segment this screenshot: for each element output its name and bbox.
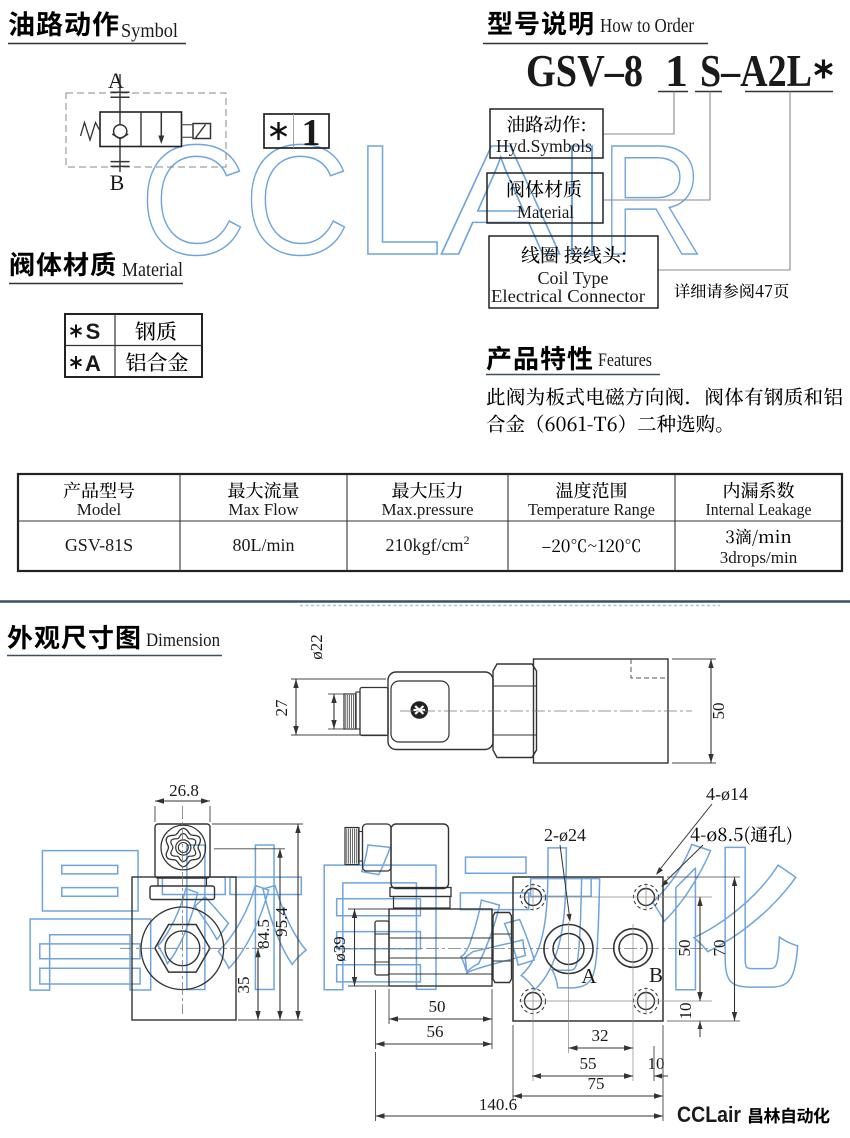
svg-text:95.4: 95.4 (272, 907, 291, 937)
svg-text:L: L (355, 113, 442, 288)
svg-text:Symbol: Symbol (121, 20, 178, 42)
svg-text:56: 56 (427, 1022, 444, 1041)
svg-text:10: 10 (648, 1054, 665, 1073)
svg-text:50: 50 (675, 940, 694, 957)
svg-text:55: 55 (580, 1054, 597, 1073)
svg-text:4-ø14: 4-ø14 (706, 784, 748, 804)
svg-text:Coil Type: Coil Type (538, 268, 609, 288)
svg-text:26.8: 26.8 (169, 781, 199, 800)
svg-text:Internal Leakage: Internal Leakage (706, 500, 812, 519)
svg-text:80L/min: 80L/min (233, 535, 295, 555)
svg-text:B: B (110, 170, 125, 195)
svg-text:How to Order: How to Order (600, 15, 694, 37)
svg-text:3drops/min: 3drops/min (720, 548, 798, 567)
svg-text:Max Flow: Max Flow (228, 500, 299, 519)
svg-text:GSV–8: GSV–8 (526, 45, 643, 96)
svg-text:Max.pressure: Max.pressure (381, 500, 473, 519)
svg-text:Model: Model (77, 500, 122, 519)
svg-text:A: A (85, 351, 101, 376)
svg-text:Electrical Connector: Electrical Connector (491, 286, 645, 306)
svg-text:1: 1 (302, 112, 321, 154)
svg-text:S: S (86, 319, 101, 344)
svg-text:84.5: 84.5 (254, 919, 273, 949)
svg-text:Material: Material (517, 202, 574, 222)
svg-text:50: 50 (709, 703, 728, 720)
svg-text:S–A2L: S–A2L (700, 45, 812, 96)
svg-text:Hyd.Symbols: Hyd.Symbols (496, 136, 592, 156)
svg-text:GSV-81S: GSV-81S (65, 535, 133, 555)
svg-text:Material: Material (122, 259, 183, 281)
svg-text:10: 10 (676, 1003, 695, 1020)
svg-text:50: 50 (429, 997, 446, 1016)
svg-text:Temperature Range: Temperature Range (528, 500, 655, 519)
svg-text:A: A (108, 68, 124, 93)
svg-text:70: 70 (710, 940, 729, 957)
svg-text:27: 27 (272, 699, 291, 717)
svg-text:210kgf/cm2: 210kgf/cm2 (386, 533, 470, 555)
svg-text:ø39: ø39 (330, 936, 349, 962)
svg-text:Dimension: Dimension (146, 630, 220, 651)
svg-text:35: 35 (234, 977, 253, 994)
svg-text:140.6: 140.6 (479, 1095, 517, 1114)
svg-text:32: 32 (592, 1026, 609, 1045)
svg-text:C: C (244, 113, 350, 288)
svg-text:2-ø24: 2-ø24 (544, 825, 586, 845)
svg-text:A: A (581, 964, 597, 988)
svg-text:B: B (649, 963, 663, 987)
svg-text:CCLair: CCLair (677, 1102, 741, 1127)
svg-text:ø22: ø22 (307, 634, 326, 660)
svg-text:1: 1 (665, 45, 688, 96)
svg-text:Features: Features (598, 350, 652, 371)
svg-text:75: 75 (588, 1074, 605, 1093)
